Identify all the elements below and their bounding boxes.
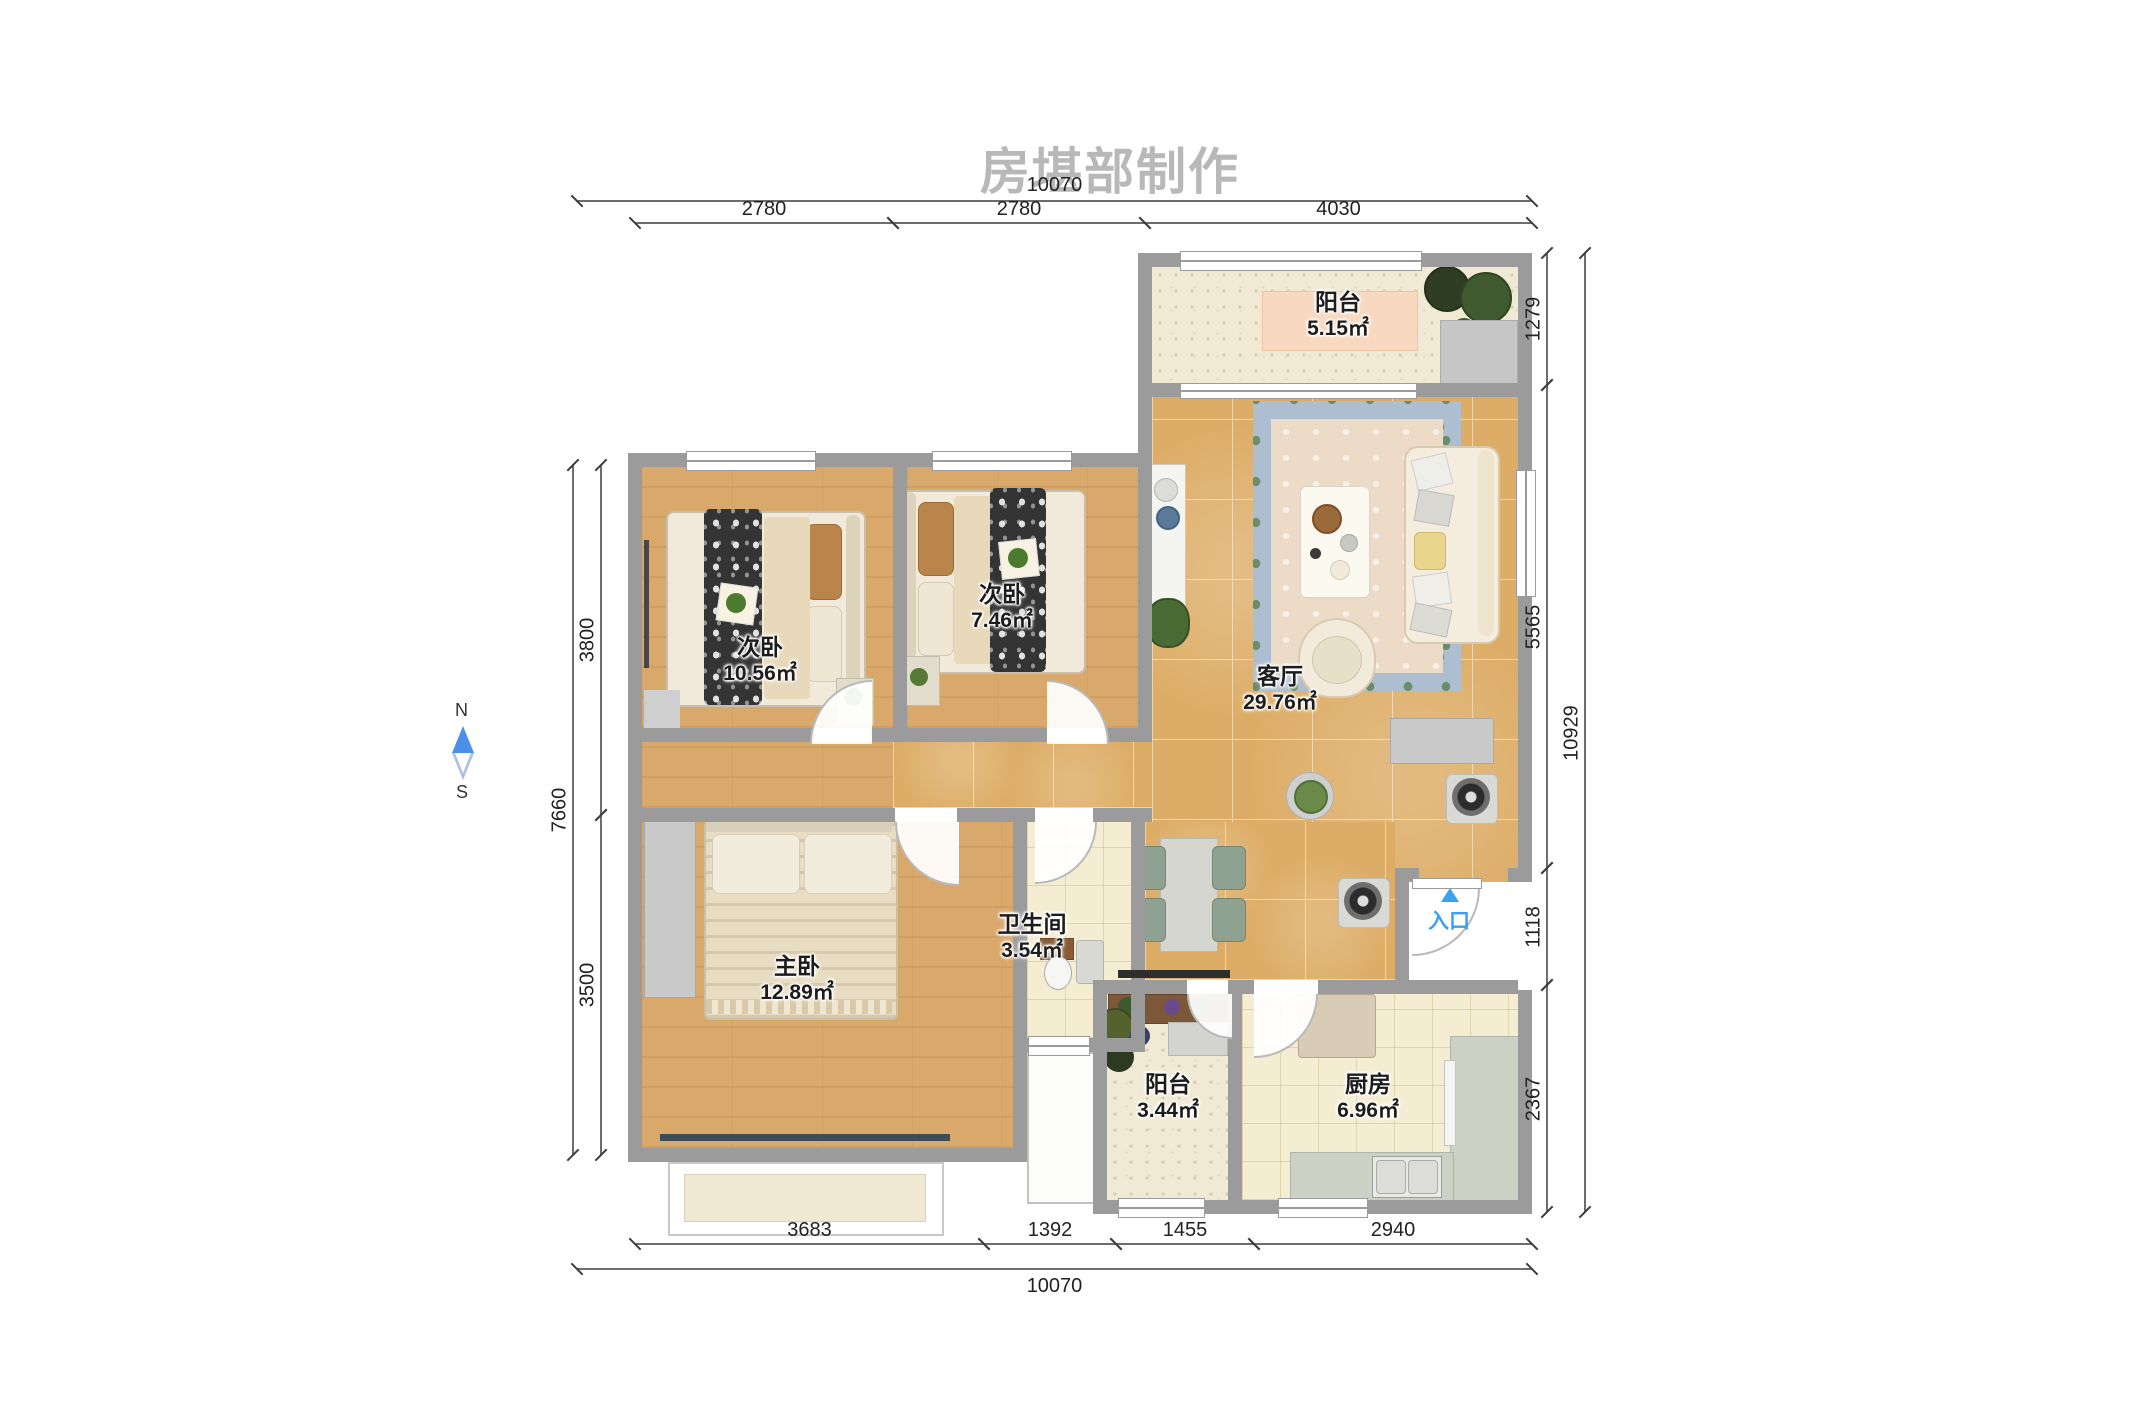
- dim-left-seg: 3500: [600, 815, 602, 1155]
- curtain-strip: [660, 1134, 950, 1141]
- dim-value: 10070: [1027, 1275, 1083, 1298]
- wall: [628, 728, 812, 742]
- room-name: 阳台: [1258, 288, 1418, 316]
- dim-value: 2780: [997, 198, 1042, 221]
- dim-right-seg: 2367: [1546, 985, 1548, 1212]
- dim-bottom-seg: 1392: [984, 1243, 1116, 1245]
- dim-bottom-total: 10070: [577, 1268, 1532, 1270]
- wall: [1138, 253, 1152, 395]
- plant-icon: [910, 668, 928, 686]
- room-area: 3.54㎡: [952, 938, 1112, 964]
- room-area: 10.56㎡: [680, 661, 840, 687]
- room-label-balcony-bottom: 阳台 3.44㎡: [1088, 1070, 1248, 1124]
- dim-value: 10929: [1561, 705, 1584, 761]
- coffee-table: [1300, 486, 1370, 598]
- room-label-master: 主卧 12.89㎡: [717, 952, 877, 1006]
- room-label-bedroom-mid: 次卧 7.46㎡: [922, 580, 1082, 634]
- dim-value: 10070: [1027, 174, 1083, 197]
- plate: [1340, 534, 1358, 552]
- dim-bottom-seg: 2940: [1254, 1243, 1532, 1245]
- room-label-balcony-top: 阳台 5.15㎡: [1258, 288, 1418, 342]
- pillow: [804, 834, 892, 894]
- entrance-arrow-icon: [1441, 888, 1459, 902]
- compass-south-inner: [455, 753, 471, 773]
- dining-table: [1160, 838, 1218, 952]
- plant-icon: [1146, 598, 1190, 648]
- wall: [628, 808, 895, 822]
- light-well: [1027, 1052, 1097, 1204]
- dim-value: 7660: [549, 788, 572, 833]
- hallway-floor: [893, 742, 1152, 808]
- dim-value: 1279: [1523, 297, 1546, 342]
- wall-strip: [644, 540, 649, 668]
- ac-platform: [1440, 320, 1518, 390]
- dim-value: 1392: [1028, 1219, 1073, 1242]
- wall: [1013, 808, 1027, 1162]
- sliding-door: [1180, 383, 1417, 399]
- dim-right-total: 10929: [1584, 253, 1586, 1212]
- dim-value: 5565: [1523, 604, 1546, 649]
- dim-value: 1118: [1523, 906, 1546, 948]
- room-name: 厨房: [1288, 1070, 1448, 1098]
- wall: [1105, 728, 1152, 742]
- dim-bottom-seg: 3683: [635, 1243, 984, 1245]
- plant-icon: [726, 593, 746, 613]
- wall: [628, 1148, 1027, 1162]
- floor-plan-canvas: 房堪部制作: [0, 0, 2135, 1421]
- tv-bar: [1118, 970, 1230, 978]
- dining-chair: [1212, 846, 1246, 890]
- dim-value: 2780: [742, 198, 787, 221]
- plant-icon: [1294, 780, 1328, 814]
- dim-right-seg: 5565: [1546, 385, 1548, 868]
- dim-value: 3683: [787, 1219, 832, 1242]
- plant-icon: [1008, 548, 1028, 568]
- room-area: 7.46㎡: [922, 608, 1082, 634]
- wall: [1395, 868, 1409, 982]
- kitchen-counter: [1450, 1036, 1520, 1202]
- wall: [1131, 808, 1145, 1052]
- dim-top-seg: 2780: [635, 222, 893, 224]
- dim-right-seg: 1279: [1546, 253, 1548, 385]
- compass-south-label: S: [456, 782, 468, 803]
- wall: [1138, 383, 1152, 742]
- basin-icon: [1156, 506, 1180, 530]
- window: [932, 451, 1072, 471]
- room-label-kitchen: 厨房 6.96㎡: [1288, 1070, 1448, 1124]
- plant-icon: [1164, 999, 1180, 1015]
- window: [1516, 470, 1536, 597]
- window: [1180, 251, 1422, 271]
- room-label-living: 客厅 29.76㎡: [1200, 662, 1360, 716]
- pillow: [712, 834, 800, 894]
- wall: [893, 453, 907, 742]
- speaker-icon: [1452, 778, 1490, 816]
- dim-left-total: 7660: [572, 465, 574, 1155]
- dim-top-total: 10070: [577, 200, 1532, 202]
- room-area: 5.15㎡: [1258, 316, 1418, 342]
- dining-chair: [1212, 898, 1246, 942]
- room-area: 3.44㎡: [1088, 1098, 1248, 1124]
- sink-basin: [1376, 1160, 1406, 1194]
- dim-value: 2367: [1523, 1076, 1546, 1121]
- compass-north-label: N: [455, 700, 468, 721]
- wall: [870, 728, 1047, 742]
- room-name: 次卧: [680, 633, 840, 661]
- dim-value: 2940: [1371, 1219, 1416, 1242]
- window: [1028, 1036, 1090, 1056]
- bed-headboard: [846, 515, 860, 699]
- dim-value: 3500: [577, 963, 600, 1008]
- cup: [1310, 548, 1321, 559]
- shoe-cabinet: [1390, 718, 1494, 764]
- room-name: 主卧: [717, 952, 877, 980]
- dim-bottom-seg: 1455: [1116, 1243, 1254, 1245]
- window: [1278, 1198, 1368, 1218]
- fruit-plate: [1312, 504, 1342, 534]
- bay-window-sill: [684, 1174, 926, 1222]
- dim-right-seg: 1118: [1546, 868, 1548, 985]
- room-name: 客厅: [1200, 662, 1360, 690]
- dim-value: 1455: [1163, 1219, 1208, 1242]
- sofa-pillow: [1413, 489, 1454, 527]
- faucet-icon: [1154, 478, 1178, 502]
- wall: [1093, 980, 1187, 994]
- speaker-icon: [1344, 882, 1382, 920]
- plate: [1330, 560, 1350, 580]
- dim-top-seg: 2780: [893, 222, 1145, 224]
- room-area: 12.89㎡: [717, 980, 877, 1006]
- room-label-bedroom-left: 次卧 10.56㎡: [680, 633, 840, 687]
- pillow: [806, 524, 842, 600]
- window: [686, 451, 816, 471]
- wall: [1318, 980, 1408, 994]
- compass-north-icon: [452, 726, 474, 753]
- entrance-label: 入口: [1428, 905, 1470, 935]
- dim-left-seg: 3800: [600, 465, 602, 815]
- corridor-floor: [642, 742, 893, 808]
- plant-icon: [1460, 272, 1512, 324]
- room-area: 6.96㎡: [1288, 1098, 1448, 1124]
- window: [1118, 1198, 1205, 1218]
- wall: [1408, 980, 1518, 994]
- room-name: 阳台: [1088, 1070, 1248, 1098]
- dim-top-seg: 4030: [1145, 222, 1532, 224]
- dim-value: 4030: [1316, 198, 1361, 221]
- room-name: 次卧: [922, 580, 1082, 608]
- room-label-bathroom: 卫生间 3.54㎡: [952, 910, 1112, 964]
- sofa-pillow: [1414, 532, 1446, 570]
- dim-value: 3800: [577, 618, 600, 663]
- pillow: [918, 502, 954, 576]
- sink-basin: [1408, 1160, 1438, 1194]
- room-name: 卫生间: [952, 910, 1112, 938]
- page-title: 房堪部制作: [940, 132, 1280, 204]
- wall: [1508, 868, 1532, 882]
- sofa-backrest: [1478, 450, 1494, 636]
- wardrobe: [644, 814, 696, 998]
- room-area: 29.76㎡: [1200, 690, 1360, 716]
